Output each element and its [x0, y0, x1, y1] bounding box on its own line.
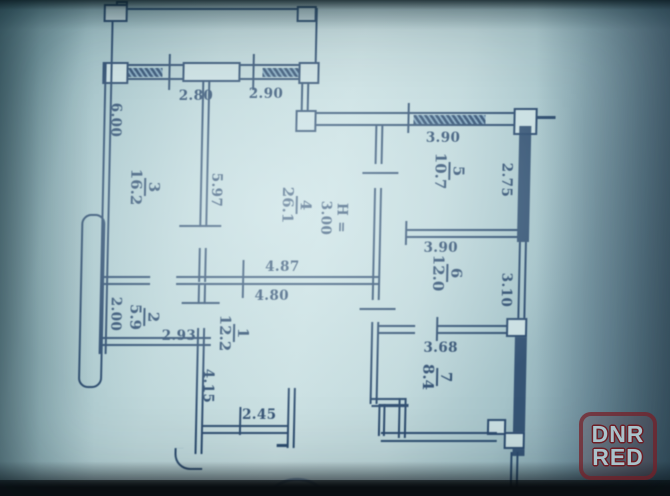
room5-window — [413, 115, 485, 124]
balcony-post-right — [297, 6, 317, 22]
east-wall-upper — [517, 126, 531, 242]
room-4-number: 4 — [295, 196, 313, 214]
dim-room5-side: 2.75 — [498, 160, 515, 200]
dim-room2-side: 2.00 — [107, 294, 124, 334]
room-3-number: 3 — [144, 178, 162, 196]
room-5-area: 10.7 — [431, 153, 449, 190]
balcony-door-sill — [182, 62, 240, 82]
balcony-post-left — [104, 4, 128, 22]
door-2-1-tick — [182, 302, 220, 304]
room-5-label: 5 10.7 — [427, 153, 470, 189]
room1-bottom-wall — [203, 425, 289, 434]
wall-6-7-right — [437, 325, 515, 334]
room-6-label: 6 12.0 — [425, 255, 468, 291]
dim-entry-width: 2.45 — [239, 407, 279, 423]
east-post-3 — [504, 432, 525, 449]
room-4-label: 4 26.1 — [274, 187, 317, 223]
wing-west-wall-c — [370, 322, 380, 404]
dim-room5-width: 3.90 — [423, 130, 463, 146]
wall-6-7-left — [379, 325, 415, 334]
vestibule-foot — [277, 444, 289, 447]
room-1-label: 1 12.2 — [212, 315, 255, 351]
room7-notch-horizontal — [378, 404, 408, 407]
east-wall-window — [517, 242, 527, 320]
room-3-label: 3 16.2 — [123, 169, 166, 205]
room-7-number: 7 — [436, 368, 454, 386]
left-balcony-outline — [78, 214, 106, 388]
dim-top-window-left: 2.80 — [176, 88, 216, 104]
room7-notch-vertical — [378, 404, 386, 436]
wall-5-6 — [407, 229, 517, 238]
east-stub — [510, 452, 519, 492]
dim-tick-top-1 — [168, 54, 171, 90]
door-1-6-tick — [360, 308, 396, 310]
connector-wall — [301, 84, 310, 112]
top-balcony-outline — [111, 8, 318, 66]
floor-plan-photo: 3 16.2 4 26.1 5 10.7 6 12.0 7 8.4 2 5.9 … — [0, 0, 670, 496]
watermark-line-1: DNR — [592, 423, 645, 446]
dim-top-window-right: 2.90 — [246, 86, 286, 102]
dim-left-height: 6.00 — [107, 100, 124, 140]
room3-window — [128, 68, 162, 77]
room-1-number: 1 — [233, 324, 251, 342]
entry-curve — [174, 448, 202, 470]
vestibule-east-wall — [287, 388, 296, 448]
dim-room7-width: 3.68 — [421, 340, 461, 356]
dnr-red-watermark: DNR RED — [579, 412, 657, 480]
room4-window — [262, 68, 300, 77]
room-7-label: 7 8.4 — [415, 359, 458, 395]
door-3-4-tick — [179, 225, 221, 227]
wing-west-wall-a — [375, 126, 384, 164]
wing-stub — [537, 116, 556, 119]
dim-hall-top-b: 4.80 — [252, 288, 292, 304]
room-6-number: 6 — [446, 264, 464, 282]
floor-plan-drawing: 3 16.2 4 26.1 5 10.7 6 12.0 7 8.4 2 5.9 … — [0, 0, 670, 496]
dim-room2-width: 2.93 — [159, 328, 199, 344]
round-stamp-arc — [258, 478, 334, 496]
top-wall-right-post — [298, 62, 319, 84]
room7-bottom-wall — [381, 432, 497, 442]
dim-room6-width: 3.90 — [421, 240, 461, 256]
room-4-area: 26.1 — [278, 187, 296, 224]
room-7-area: 8.4 — [418, 364, 436, 390]
dim-tick-hall — [242, 260, 245, 298]
room-2-number: 2 — [143, 308, 161, 326]
wing-west-wall-b — [372, 188, 382, 300]
room-3-area: 16.2 — [126, 169, 144, 206]
door-4-5-tick — [362, 172, 398, 174]
dim-hall-top-a: 4.87 — [262, 259, 302, 275]
room-1-area: 12.2 — [215, 315, 233, 352]
room-2-area: 5.9 — [126, 304, 144, 330]
dim-tick-top-2 — [252, 54, 255, 90]
dim-hall-side: 4.15 — [199, 366, 216, 406]
wall-4-1 — [198, 276, 380, 285]
dim-room6-side: 3.10 — [498, 270, 515, 310]
dim-partition-3-4: 5.97 — [208, 170, 225, 210]
room-5-number: 5 — [448, 162, 466, 180]
room-6-area: 12.0 — [428, 255, 446, 292]
dim-tick-wing — [407, 103, 410, 133]
dim-ceiling-height: H = 3.00 — [333, 186, 350, 250]
door-6-7-tick — [436, 317, 439, 341]
wall-3-2-left — [100, 276, 150, 285]
door-5-6-tick — [405, 221, 408, 245]
watermark-line-2: RED — [592, 446, 644, 469]
east-post-1 — [506, 318, 527, 337]
